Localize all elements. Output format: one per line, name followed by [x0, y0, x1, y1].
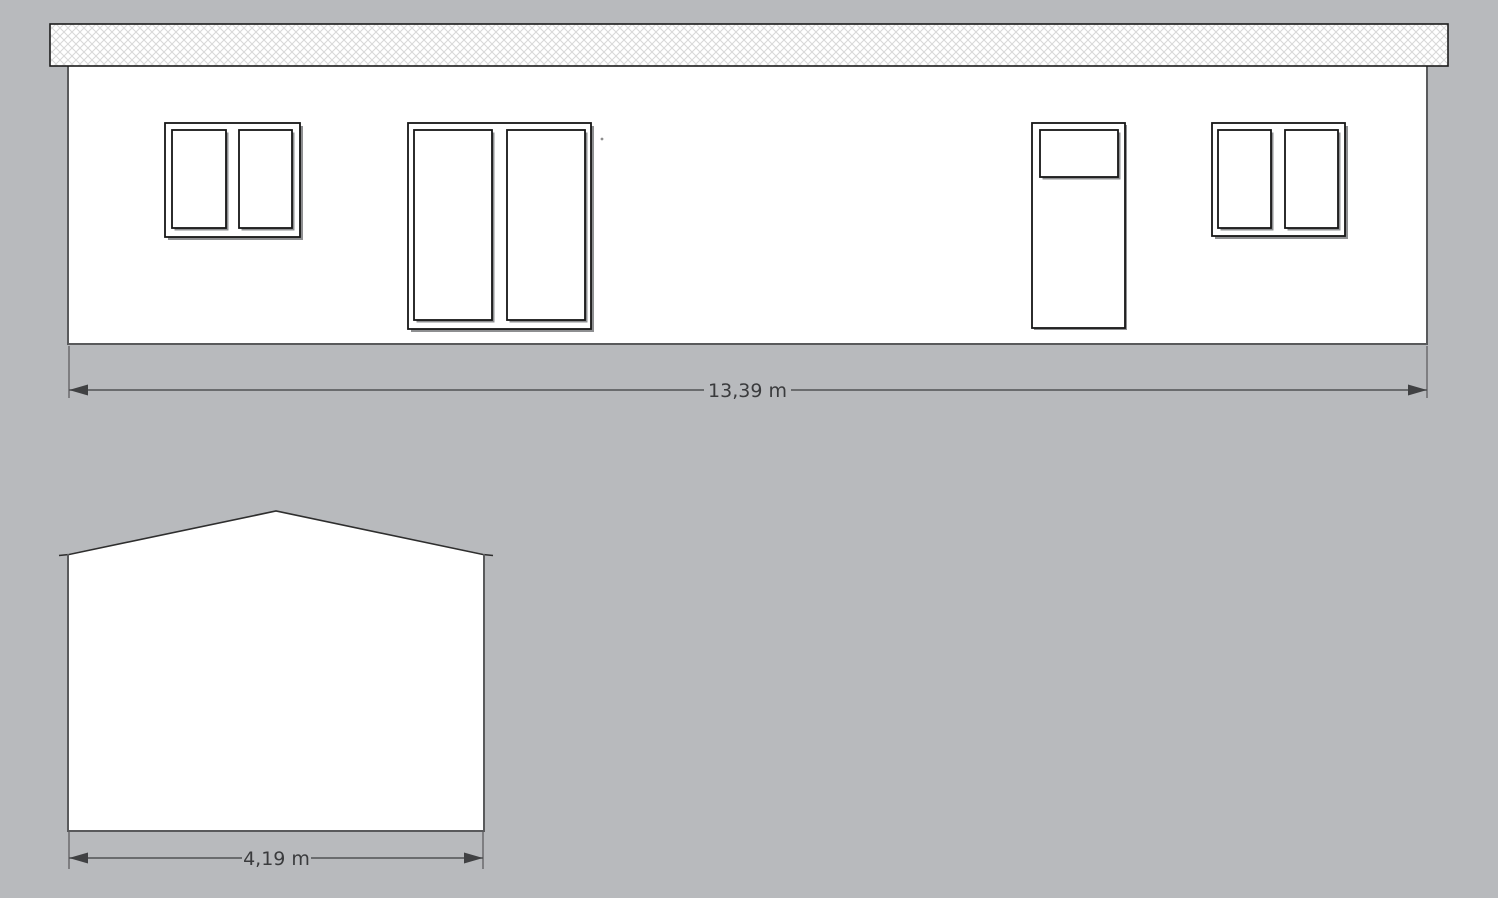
side-elevation: 4,19 m — [59, 511, 493, 870]
window-large — [408, 123, 594, 332]
elevation-drawing: 13,39 m 4,19 m — [0, 0, 1498, 898]
window-right-pane2 — [1285, 130, 1338, 228]
dimension-arrow-right-icon — [1408, 385, 1427, 396]
side-width-dimension-label: 4,19 m — [243, 848, 310, 870]
front-width-dimension-label: 13,39 m — [708, 380, 787, 402]
dimension-arrow-right-icon — [464, 853, 483, 864]
side-width-dimension: 4,19 m — [69, 832, 483, 870]
gable-fill — [68, 511, 484, 831]
front-width-dimension: 13,39 m — [69, 346, 1427, 402]
window-large-pane1 — [414, 130, 492, 320]
door — [1032, 123, 1127, 330]
door-window — [1040, 130, 1118, 177]
front-elevation: 13,39 m — [50, 24, 1448, 402]
roof-band — [50, 24, 1448, 66]
window-large-pane2 — [507, 130, 585, 320]
stray-point — [601, 138, 604, 141]
window-right — [1212, 123, 1348, 239]
window-left — [165, 123, 303, 240]
dimension-arrow-left-icon — [69, 853, 88, 864]
window-left-pane2 — [239, 130, 292, 228]
drawing-canvas: 13,39 m 4,19 m — [0, 0, 1498, 898]
window-left-pane1 — [172, 130, 226, 228]
window-right-pane1 — [1218, 130, 1271, 228]
dimension-arrow-left-icon — [69, 385, 88, 396]
